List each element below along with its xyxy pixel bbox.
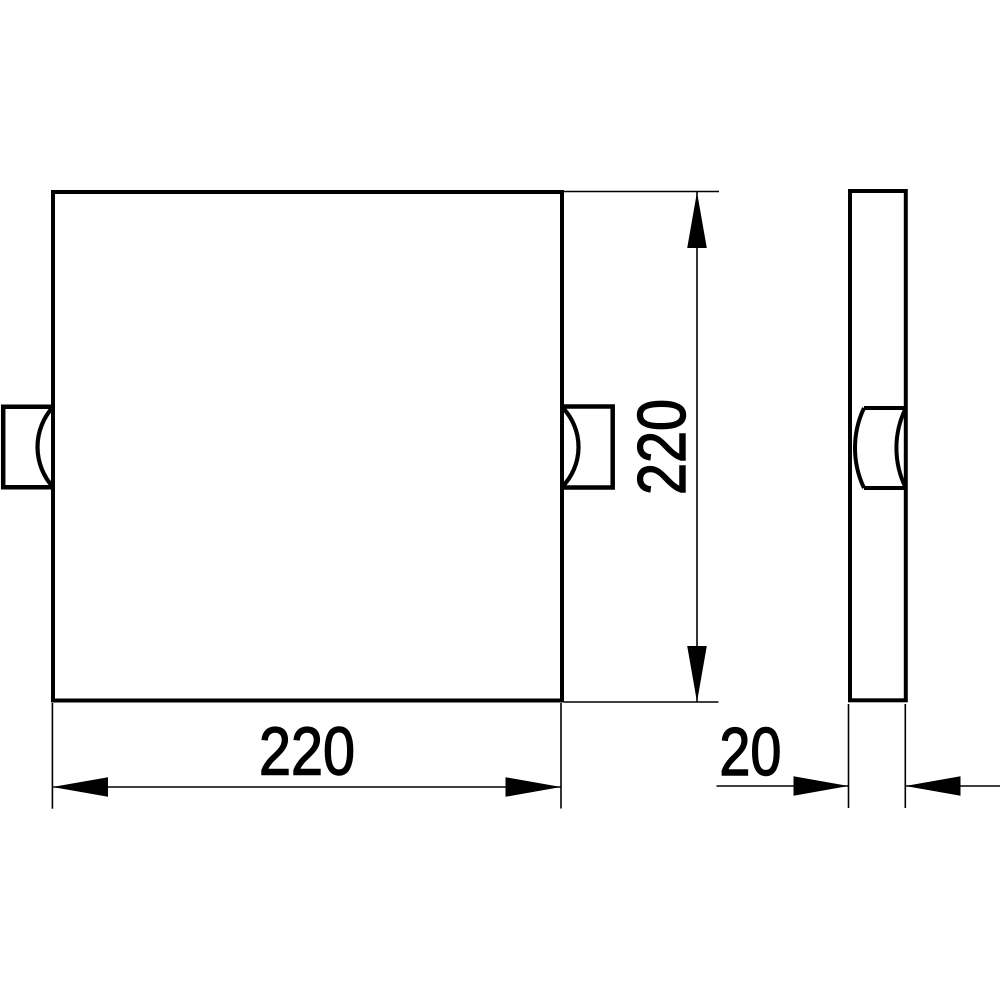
svg-text:20: 20 xyxy=(719,714,781,790)
svg-text:220: 220 xyxy=(259,714,355,790)
svg-text:220: 220 xyxy=(624,399,700,495)
